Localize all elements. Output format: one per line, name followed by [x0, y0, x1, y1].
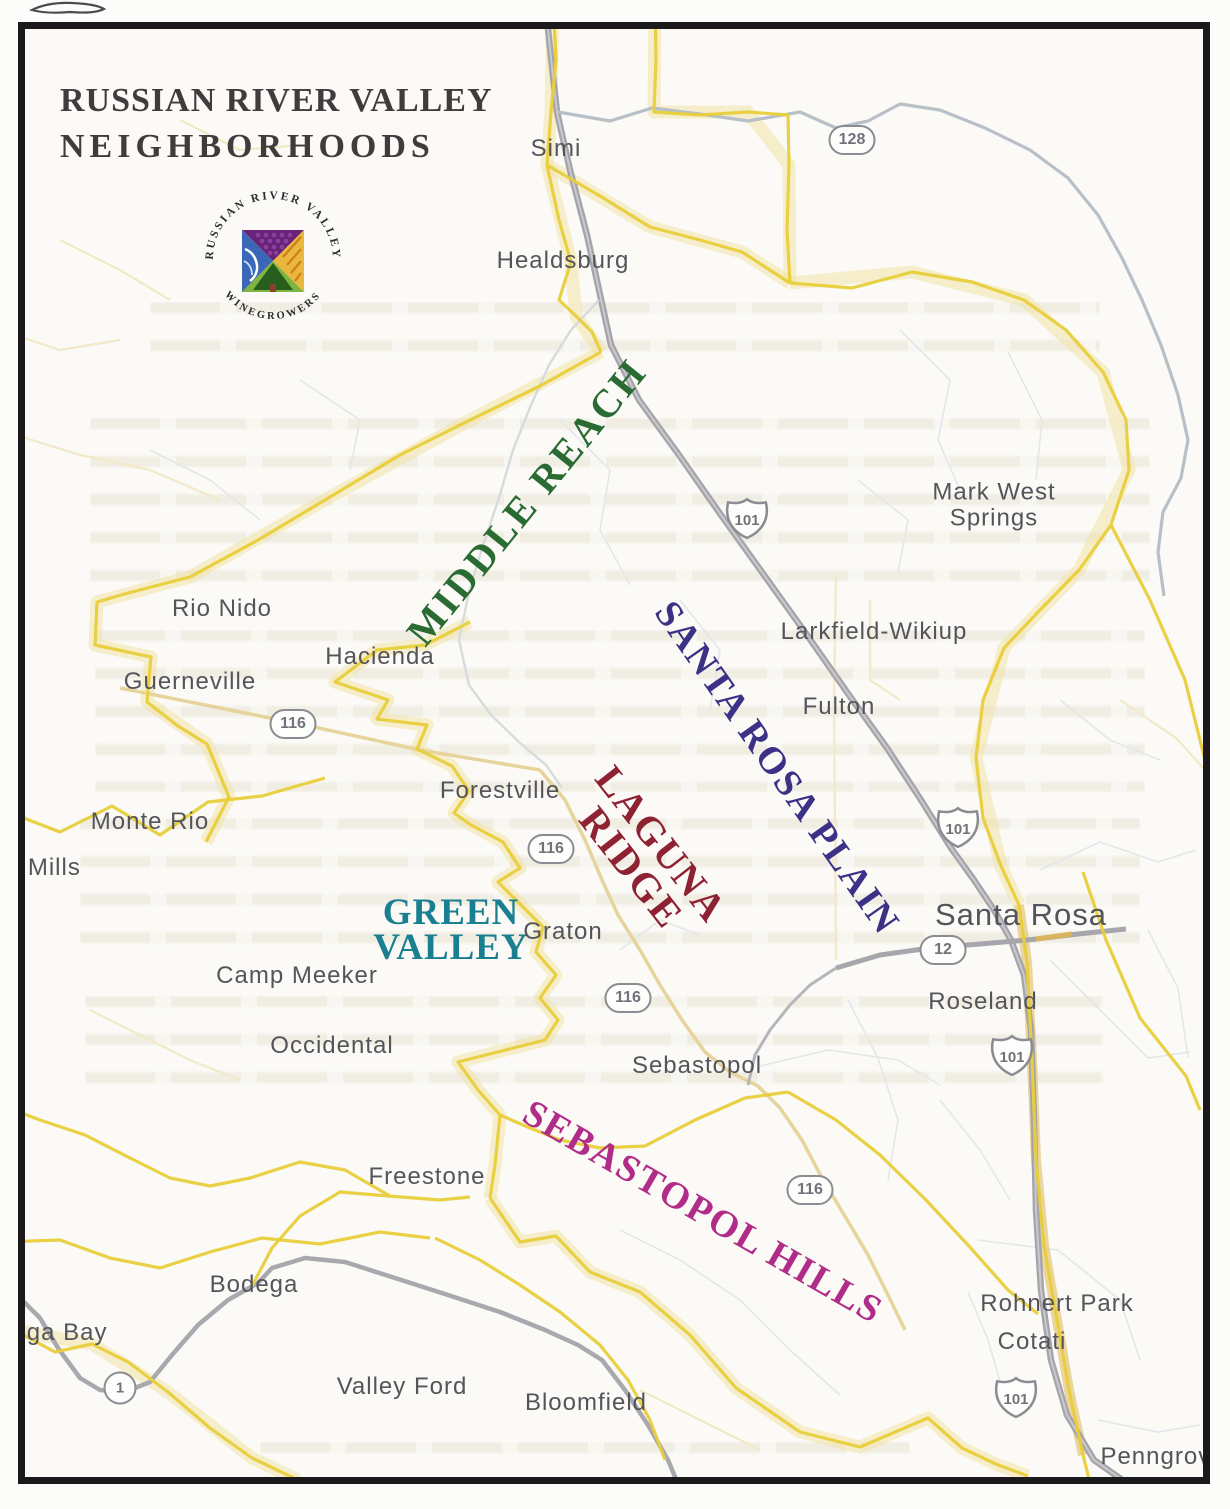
- city-label-graton: Graton: [523, 919, 602, 945]
- city-label-mark-west-springs: Mark West Springs: [932, 480, 1055, 533]
- shield-number: 116: [615, 990, 641, 1006]
- highway-shield-101-us: 101: [989, 1034, 1035, 1076]
- city-label-monte-rio: Monte Rio: [91, 809, 209, 835]
- city-label-roseland: Roseland: [928, 989, 1037, 1015]
- shield-number: 101: [734, 513, 759, 528]
- scan-artifact-mark: [20, 0, 150, 18]
- city-label-forestville: Forestville: [440, 778, 560, 804]
- city-label-occidental: Occidental: [270, 1033, 393, 1059]
- city-label-bodega: Bodega: [210, 1272, 299, 1298]
- city-label-s-mills: s Mills: [25, 855, 81, 881]
- scanned-map-page: RUSSIAN RIVER VALLEY NEIGHBORHOODS RUSSI…: [0, 0, 1230, 1509]
- shield-number: 101: [945, 822, 970, 837]
- shield-number: 12: [934, 942, 952, 958]
- highway-shield-101-us: 101: [993, 1376, 1039, 1418]
- highway-shield-128: 128: [829, 125, 876, 155]
- city-label-hacienda: Hacienda: [325, 644, 434, 670]
- city-label-cotati: Cotati: [998, 1329, 1067, 1355]
- city-label-valley-ford: Valley Ford: [337, 1374, 468, 1400]
- shield-number: 116: [797, 1182, 823, 1198]
- highway-shield-1: 1: [104, 1372, 137, 1405]
- city-label-rio-nido: Rio Nido: [172, 596, 272, 622]
- city-label-healdsburg: Healdsburg: [497, 248, 630, 274]
- shield-number: 116: [538, 841, 564, 857]
- city-label-bloomfield: Bloomfield: [525, 1390, 647, 1416]
- map-title: RUSSIAN RIVER VALLEY NEIGHBORHOODS: [60, 78, 425, 170]
- logo-quadrants: [242, 230, 304, 292]
- city-label-santa-rosa: Santa Rosa: [935, 898, 1107, 932]
- city-label-simi: Simi: [531, 136, 582, 162]
- map-title-line1: RUSSIAN RIVER VALLEY: [60, 78, 425, 124]
- shield-number: 128: [839, 132, 866, 148]
- region-label-green-valley: GREEN VALLEY: [373, 895, 528, 965]
- highway-shield-116: 116: [605, 983, 652, 1013]
- map-title-line2: NEIGHBORHOODS: [60, 124, 425, 170]
- highway-shield-101-us: 101: [724, 497, 770, 539]
- highway-shield-116: 116: [270, 709, 317, 739]
- city-label-rohnert-park: Rohnert Park: [980, 1291, 1133, 1317]
- highway-shield-12: 12: [920, 935, 967, 965]
- highway-shield-116: 116: [787, 1175, 834, 1205]
- city-label-bodega-bay: ega Bay: [25, 1320, 108, 1346]
- city-label-penngrove: Penngrove: [1100, 1444, 1203, 1470]
- highway-shield-116: 116: [528, 834, 575, 864]
- shield-number: 1: [116, 1381, 124, 1396]
- shield-number: 101: [1003, 1392, 1028, 1407]
- city-label-freestone: Freestone: [368, 1164, 485, 1190]
- city-label-larkfield-wikiup: Larkfield-Wikiup: [781, 619, 968, 645]
- shield-number: 116: [280, 716, 306, 732]
- city-label-guerneville: Guerneville: [124, 669, 256, 695]
- winegrowers-logo: RUSSIAN RIVER VALLEY • WINEGROWERS •: [203, 189, 343, 329]
- city-label-sebastopol: Sebastopol: [632, 1053, 762, 1079]
- city-label-camp-meeker: Camp Meeker: [216, 963, 378, 989]
- map-canvas: RUSSIAN RIVER VALLEY NEIGHBORHOODS RUSSI…: [25, 29, 1203, 1477]
- highway-shield-101-us: 101: [935, 806, 981, 848]
- city-label-fulton: Fulton: [803, 694, 876, 720]
- shield-number: 101: [999, 1050, 1024, 1065]
